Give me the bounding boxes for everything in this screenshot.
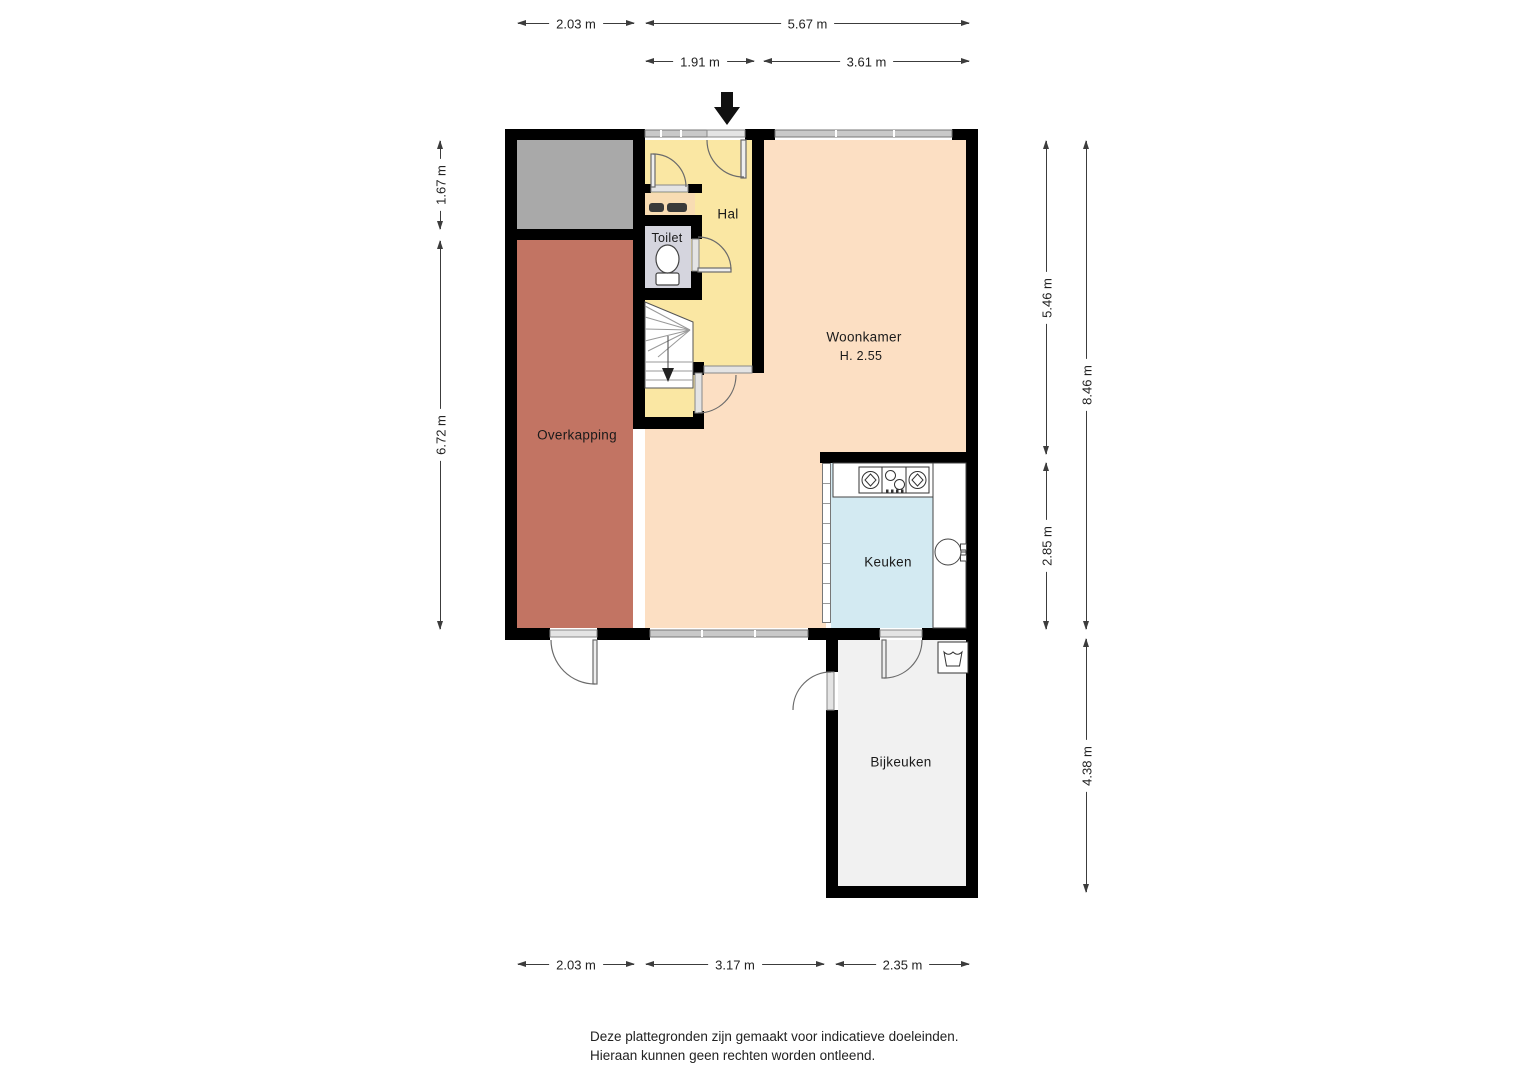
sill-overkapping-door [550,630,597,637]
wall-hal-right [752,129,764,373]
dimension-label: 1.91 m [673,55,727,70]
dimension-right-outer-2: 4.38 m [1080,638,1094,893]
dimension-top-outer-2: 5.67 m [645,17,970,31]
wall-bijkeuken-left-a [826,640,838,672]
wall-bijkeuken-left-b [826,710,838,886]
room-storage-floor [517,140,633,230]
glazed-panel-hal [704,366,752,373]
room-label-toilet: Toilet [652,231,683,245]
room-fills [517,140,966,886]
door-leaf-meterkast [651,154,655,187]
sill-entrance [707,130,745,137]
room-label-keuken: Keuken [864,555,912,570]
wall-meterkast-b [688,184,702,193]
door-leaf-entrance [741,140,746,178]
dimension-left-2: 6.72 m [434,240,448,630]
wall-top-left [505,129,645,140]
dimension-bottom-3: 2.35 m [835,958,970,972]
dimension-label: 3.61 m [840,55,894,70]
sill-toilet-door [692,239,699,271]
wall-toilet-bottom [633,288,702,300]
dimension-left-1: 1.67 m [434,140,448,230]
window-hal-top [645,130,707,137]
window-woonkamer-bottom [650,630,808,637]
meter-boxes-icon [649,203,687,212]
sill-bijkeuken-side-door [827,672,834,710]
dimension-right-inner-1: 5.46 m [1040,140,1054,455]
disclaimer: Deze plattegronden zijn gemaakt voor ind… [590,1028,959,1065]
dimension-bottom-2: 3.17 m [645,958,825,972]
wall-bottom-3 [808,628,880,640]
disclaimer-line-2: Hieraan kunnen geen rechten worden ontle… [590,1047,959,1066]
floorplan-page: Hal Toilet Woonkamer H. 2.55 Overkapping… [0,0,1527,1080]
dimension-right-inner-2: 2.85 m [1040,462,1054,630]
dimension-label: 3.17 m [708,958,762,973]
wall-bottom-4 [922,628,978,640]
toilet-icon [656,245,679,285]
door-leaf-overkapping [593,640,597,684]
door-arc-bijkeuken-side [793,672,831,710]
wall-meterkast-a [645,184,651,193]
wall-bijkeuken-bottom [826,886,978,898]
room-label-woonkamer: Woonkamer [826,330,901,345]
door-leaf-hal-woonkamer [695,373,702,413]
room-label-bijkeuken: Bijkeuken [870,755,931,770]
dimension-bottom-1: 2.03 m [517,958,635,972]
door-leaf-keuken-bijkeuken [882,640,886,678]
room-label-overkapping: Overkapping [537,428,617,443]
dimension-label: 2.85 m [1040,520,1055,572]
door-arc-overkapping [551,640,595,684]
sill-meterkast-door [651,185,688,192]
stove-icon [859,467,929,493]
dimension-label: 4.38 m [1080,740,1095,792]
dimension-label: 2.03 m [549,958,603,973]
wall-overkapping-right [633,129,645,429]
dimension-top-inner-2: 3.61 m [763,55,970,69]
wall-bottom-1 [505,628,550,640]
dimension-label: 5.46 m [1040,272,1055,324]
dimension-label: 5.67 m [781,17,835,32]
washing-machine-icon [938,642,968,673]
wall-keuken-top [820,452,966,463]
wall-toilet-right-a [691,215,702,239]
dimension-top-outer-1: 2.03 m [517,17,635,31]
wall-left [505,129,517,640]
wall-right [966,129,978,898]
dimension-right-outer-1: 8.46 m [1080,140,1094,630]
window-woonkamer-top [775,130,952,137]
counter-bar-strip [822,463,831,623]
dimension-label: 6.72 m [434,409,449,461]
room-label-hal: Hal [717,207,738,222]
floorplan-drawing [0,0,1527,1080]
room-woonkamer-floor-lower [645,417,826,628]
disclaimer-line-1: Deze plattegronden zijn gemaakt voor ind… [590,1028,959,1047]
wall-storage-bottom [505,229,645,240]
wall-below-stairs [633,417,704,429]
room-woonkamer-floor [764,140,966,452]
sill-keuken-bijkeuken-door [880,630,922,637]
door-leaf-toilet [698,268,731,272]
wall-bottom-2 [597,628,650,640]
dimension-label: 2.03 m [549,17,603,32]
dimension-label: 8.46 m [1080,359,1095,411]
dimension-label: 2.35 m [876,958,930,973]
room-height-note-woonkamer: H. 2.55 [840,349,882,363]
dimension-top-inner-1: 1.91 m [645,55,755,69]
dimension-label: 1.67 m [434,159,449,211]
entrance-arrow-icon [714,92,740,125]
